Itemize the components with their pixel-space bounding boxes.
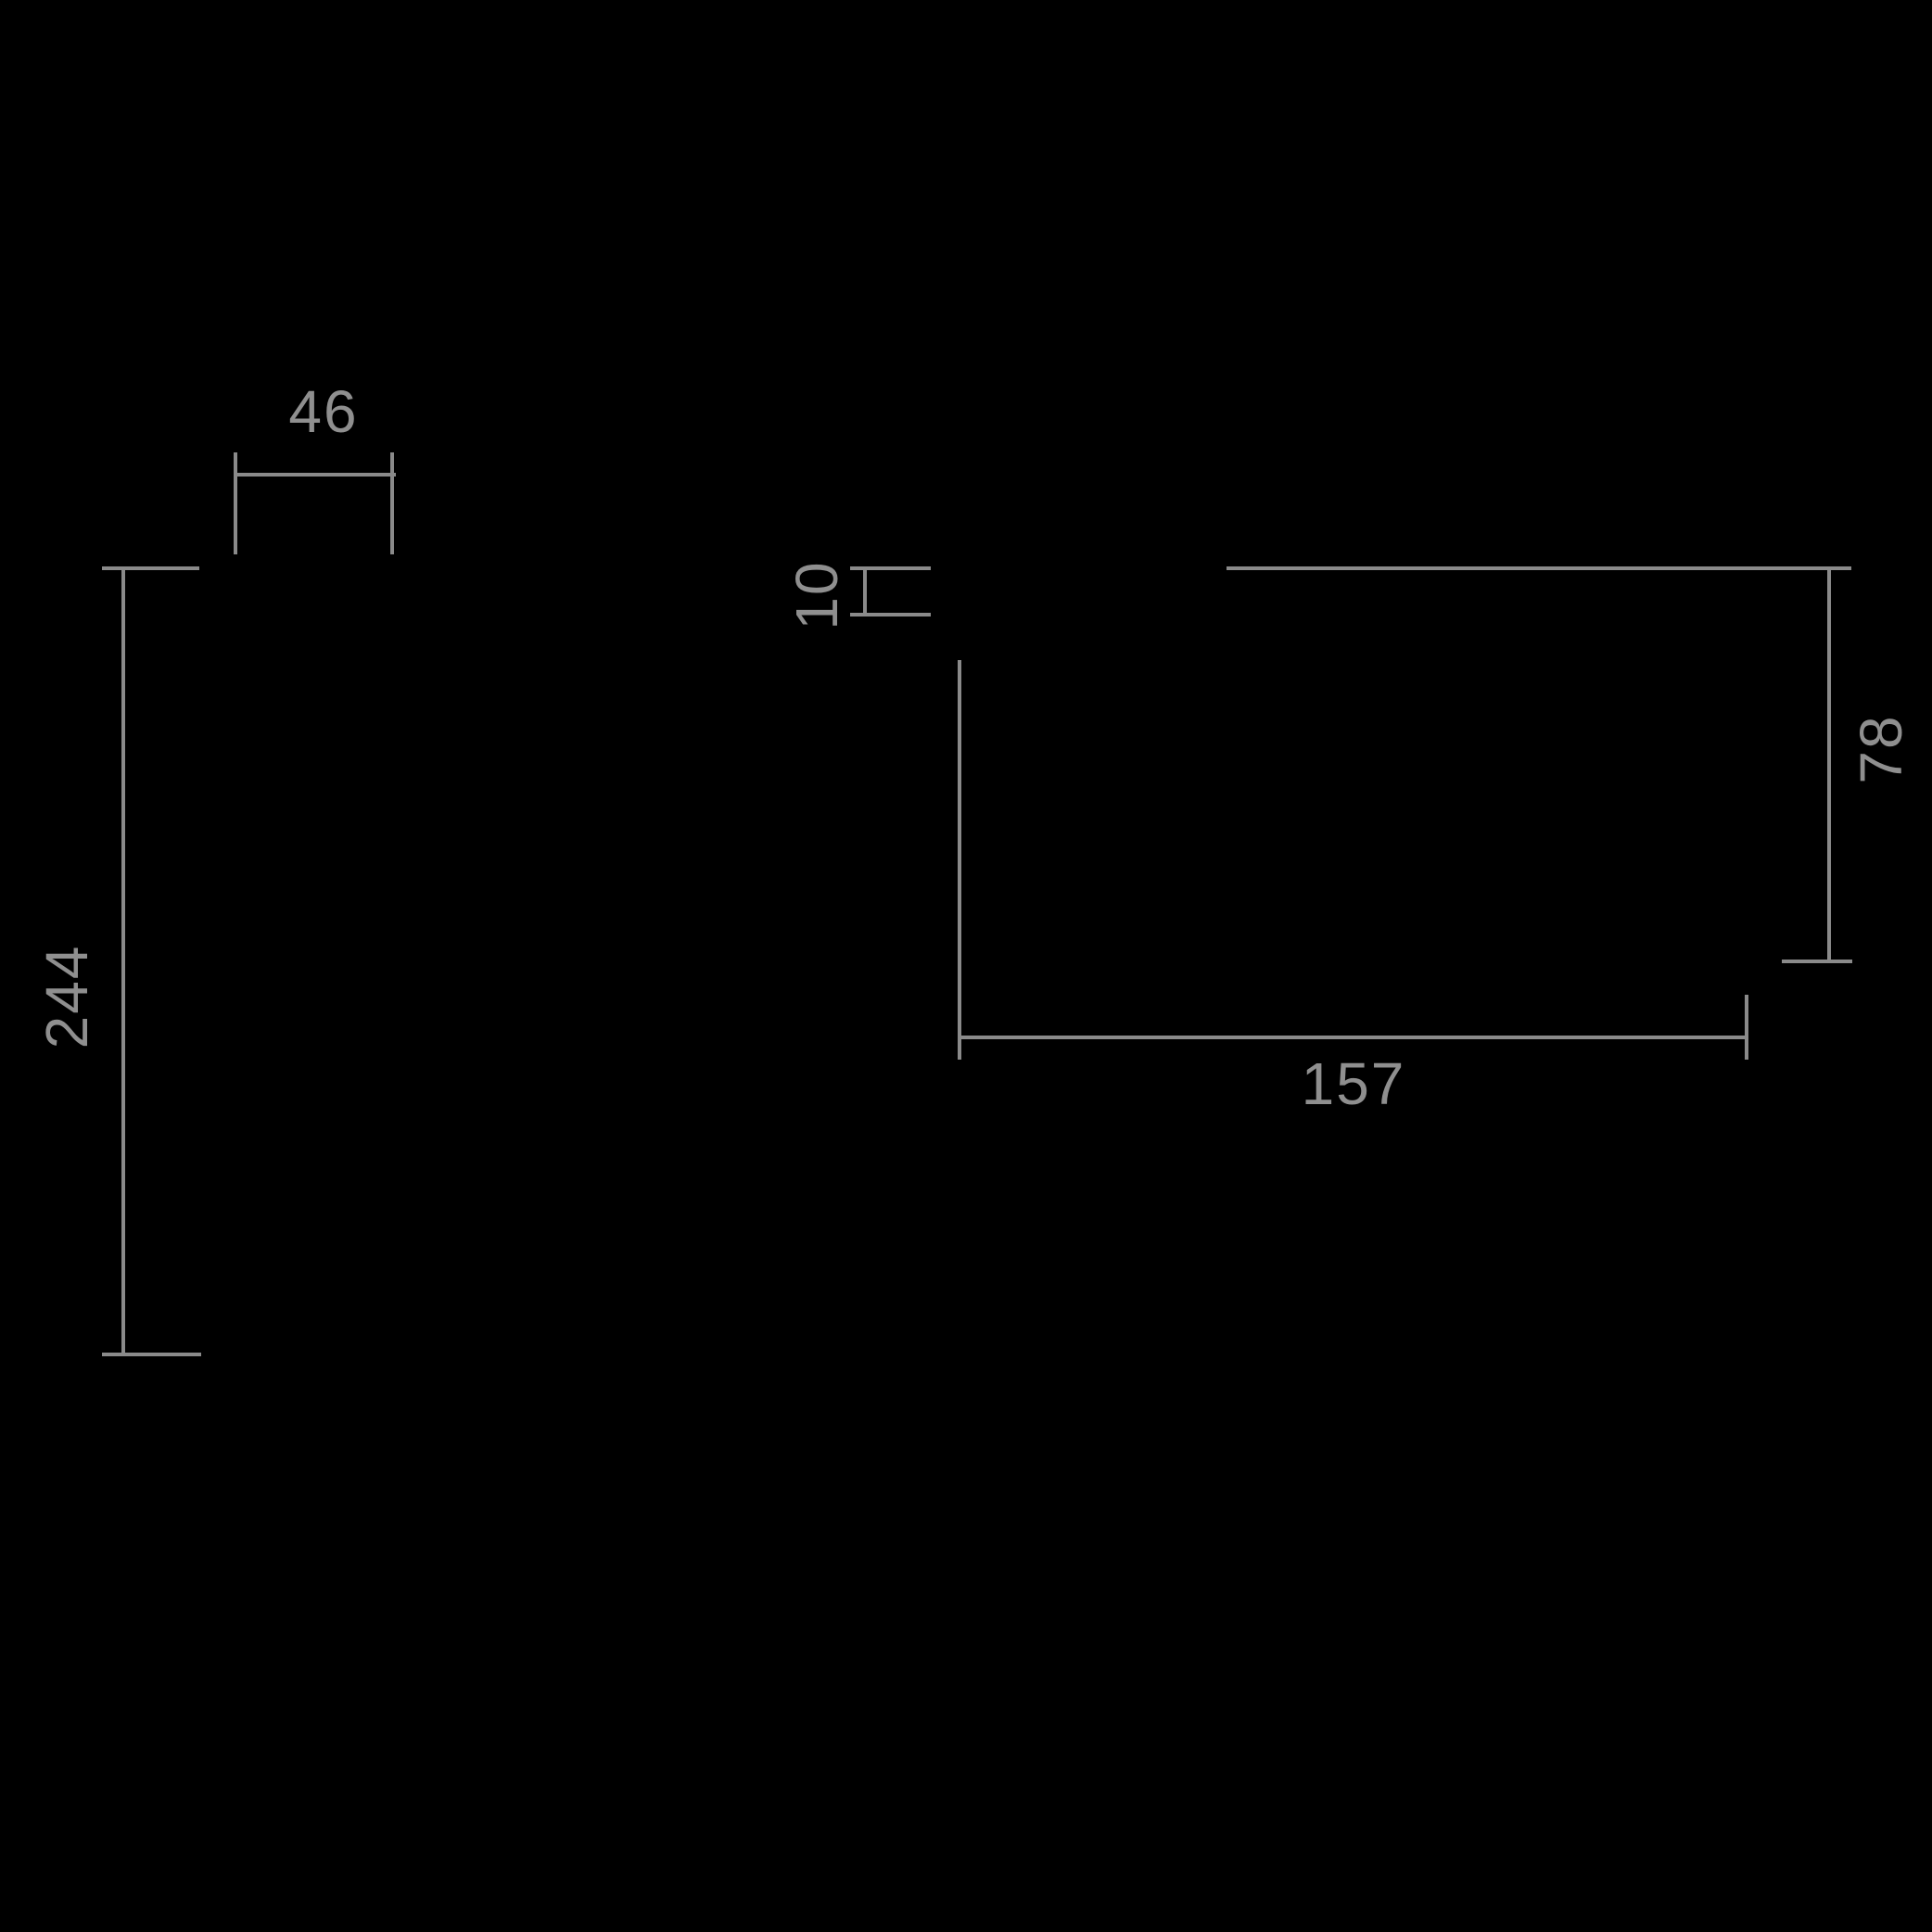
dim-78-tick-bottom [1782, 960, 1852, 963]
dim-157-extension-left [958, 660, 961, 1060]
dim-46-line [234, 473, 396, 477]
dim-10-line [863, 566, 867, 616]
dim-10-label: 10 [787, 560, 846, 629]
dimension-drawing-canvas: 46 244 10 78 157 [0, 0, 1932, 1932]
dim-46-label: 46 [288, 382, 358, 441]
dim-157-tick-right [1745, 995, 1748, 1060]
dim-244-tick-bottom [102, 1353, 201, 1356]
dim-244-line [121, 566, 125, 1356]
dim-244-tick-top [102, 566, 199, 570]
dim-157-line [958, 1036, 1748, 1039]
dim-78-line [1827, 566, 1831, 963]
dim-157-label: 157 [1302, 1054, 1406, 1113]
dim-46-extension-right [390, 452, 394, 554]
dim-78-label: 78 [1851, 714, 1911, 783]
dim-244-label: 244 [37, 945, 96, 1049]
object-top-edge-line [1227, 566, 1851, 570]
dim-46-extension-left [234, 452, 237, 554]
